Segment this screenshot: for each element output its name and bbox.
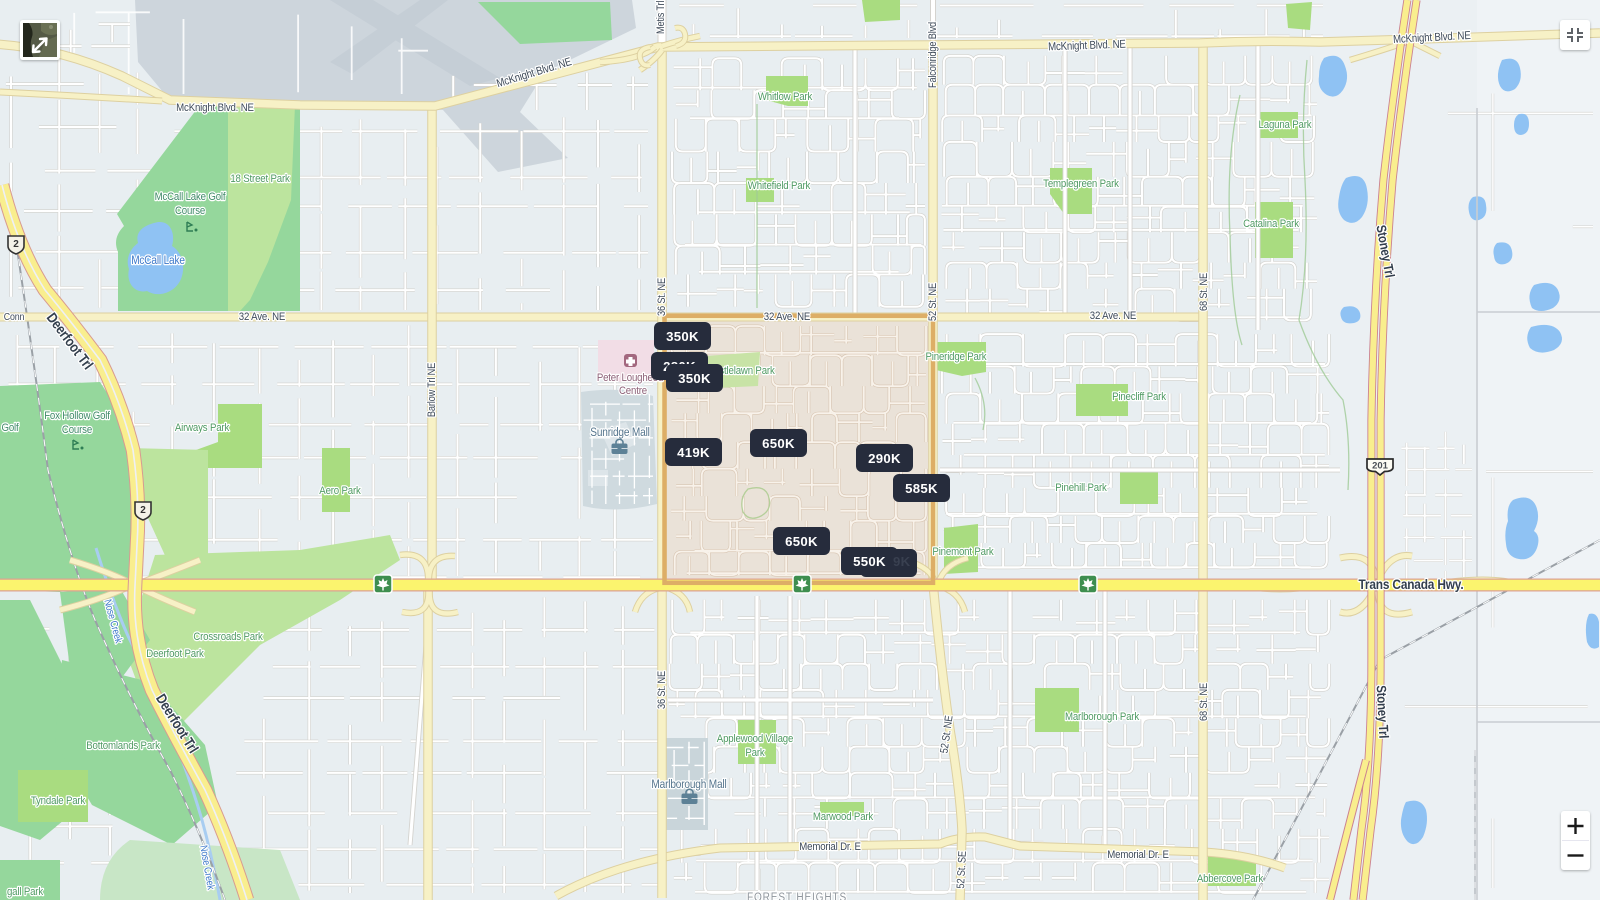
svg-text:Park: Park <box>745 746 765 759</box>
svg-text:Applewood Village: Applewood Village <box>717 732 794 745</box>
svg-text:FOREST HEIGHTS: FOREST HEIGHTS <box>747 891 847 900</box>
svg-text:2: 2 <box>140 505 146 516</box>
svg-text:Pinemont Park: Pinemont Park <box>932 545 994 558</box>
svg-text:McCall Lake: McCall Lake <box>131 254 185 267</box>
svg-text:gall Park: gall Park <box>7 885 44 898</box>
svg-text:Marlborough Park: Marlborough Park <box>1065 710 1140 723</box>
svg-text:201: 201 <box>1372 461 1389 472</box>
svg-text:350K: 350K <box>678 371 711 386</box>
svg-text:32 Ave. NE: 32 Ave. NE <box>1090 309 1137 322</box>
svg-text:9K: 9K <box>893 554 911 569</box>
svg-text:550K: 550K <box>853 554 886 569</box>
svg-text:Sunridge Mall: Sunridge Mall <box>590 426 649 439</box>
svg-text:Pinehill Park: Pinehill Park <box>1055 481 1107 494</box>
svg-text:18 Street Park: 18 Street Park <box>230 172 290 185</box>
svg-text:Barlow Trl NE: Barlow Trl NE <box>426 363 438 418</box>
svg-text:Marwood Park: Marwood Park <box>813 810 874 823</box>
svg-text:2: 2 <box>13 239 19 250</box>
svg-text:Whitlow Park: Whitlow Park <box>758 90 813 103</box>
svg-text:Stoney Trl: Stoney Trl <box>1373 685 1391 739</box>
svg-text:68 St. NE: 68 St. NE <box>1198 683 1210 721</box>
svg-text:Course: Course <box>62 423 92 436</box>
svg-text:350K: 350K <box>666 329 699 344</box>
svg-text:Falconridge Blvd: Falconridge Blvd <box>927 22 939 88</box>
svg-text:585K: 585K <box>905 481 938 496</box>
svg-text:McCall Lake Golf: McCall Lake Golf <box>155 190 226 203</box>
svg-text:Crossroads Park: Crossroads Park <box>193 630 263 643</box>
svg-text:Trans Canada Hwy.: Trans Canada Hwy. <box>1359 576 1464 592</box>
svg-text:Metis Trl NE: Metis Trl NE <box>655 0 667 34</box>
svg-text:Abbercove Park: Abbercove Park <box>1197 872 1264 885</box>
svg-text:290K: 290K <box>868 451 901 466</box>
svg-text:Laguna Park: Laguna Park <box>1259 118 1313 131</box>
svg-text:36 St. NE: 36 St. NE <box>656 278 668 316</box>
svg-text:McKnight Blvd. NE: McKnight Blvd. NE <box>1048 38 1126 54</box>
svg-text:650K: 650K <box>785 534 818 549</box>
svg-text:Tyndale Park: Tyndale Park <box>31 794 86 807</box>
svg-text:Airways Park: Airways Park <box>175 421 230 434</box>
svg-text:419K: 419K <box>677 445 710 460</box>
svg-text:52 St. NE: 52 St. NE <box>927 283 939 321</box>
svg-text:32 Ave. NE: 32 Ave. NE <box>239 310 286 323</box>
svg-text:Catalina Park: Catalina Park <box>1243 217 1300 230</box>
svg-text:Aero Park: Aero Park <box>319 484 361 497</box>
svg-text:52 St. SE: 52 St. SE <box>955 850 969 888</box>
svg-text:Fox Hollow Golf: Fox Hollow Golf <box>44 409 110 422</box>
svg-text:Conn: Conn <box>4 311 24 323</box>
svg-text:68 St. NE: 68 St. NE <box>1198 273 1210 311</box>
svg-text:Centre: Centre <box>619 384 647 397</box>
svg-text:Course: Course <box>175 204 205 217</box>
svg-text:Deerfoot Park: Deerfoot Park <box>146 647 204 660</box>
svg-text:Golf: Golf <box>1 421 18 434</box>
svg-text:Bottomlands Park: Bottomlands Park <box>86 739 160 752</box>
svg-text:McKnight Blvd. NE: McKnight Blvd. NE <box>176 101 254 114</box>
svg-text:Whitefield Park: Whitefield Park <box>748 179 811 192</box>
svg-text:Memorial Dr. E: Memorial Dr. E <box>1107 848 1169 861</box>
svg-text:Pinecliff Park: Pinecliff Park <box>1112 390 1167 403</box>
svg-text:650K: 650K <box>762 436 795 451</box>
svg-text:Templegreen Park: Templegreen Park <box>1043 177 1119 190</box>
svg-text:32 Ave. NE: 32 Ave. NE <box>764 310 811 323</box>
svg-text:Memorial Dr. E: Memorial Dr. E <box>799 840 861 853</box>
svg-text:36 St. NE: 36 St. NE <box>656 671 668 709</box>
svg-text:Pineridge Park: Pineridge Park <box>926 350 988 363</box>
